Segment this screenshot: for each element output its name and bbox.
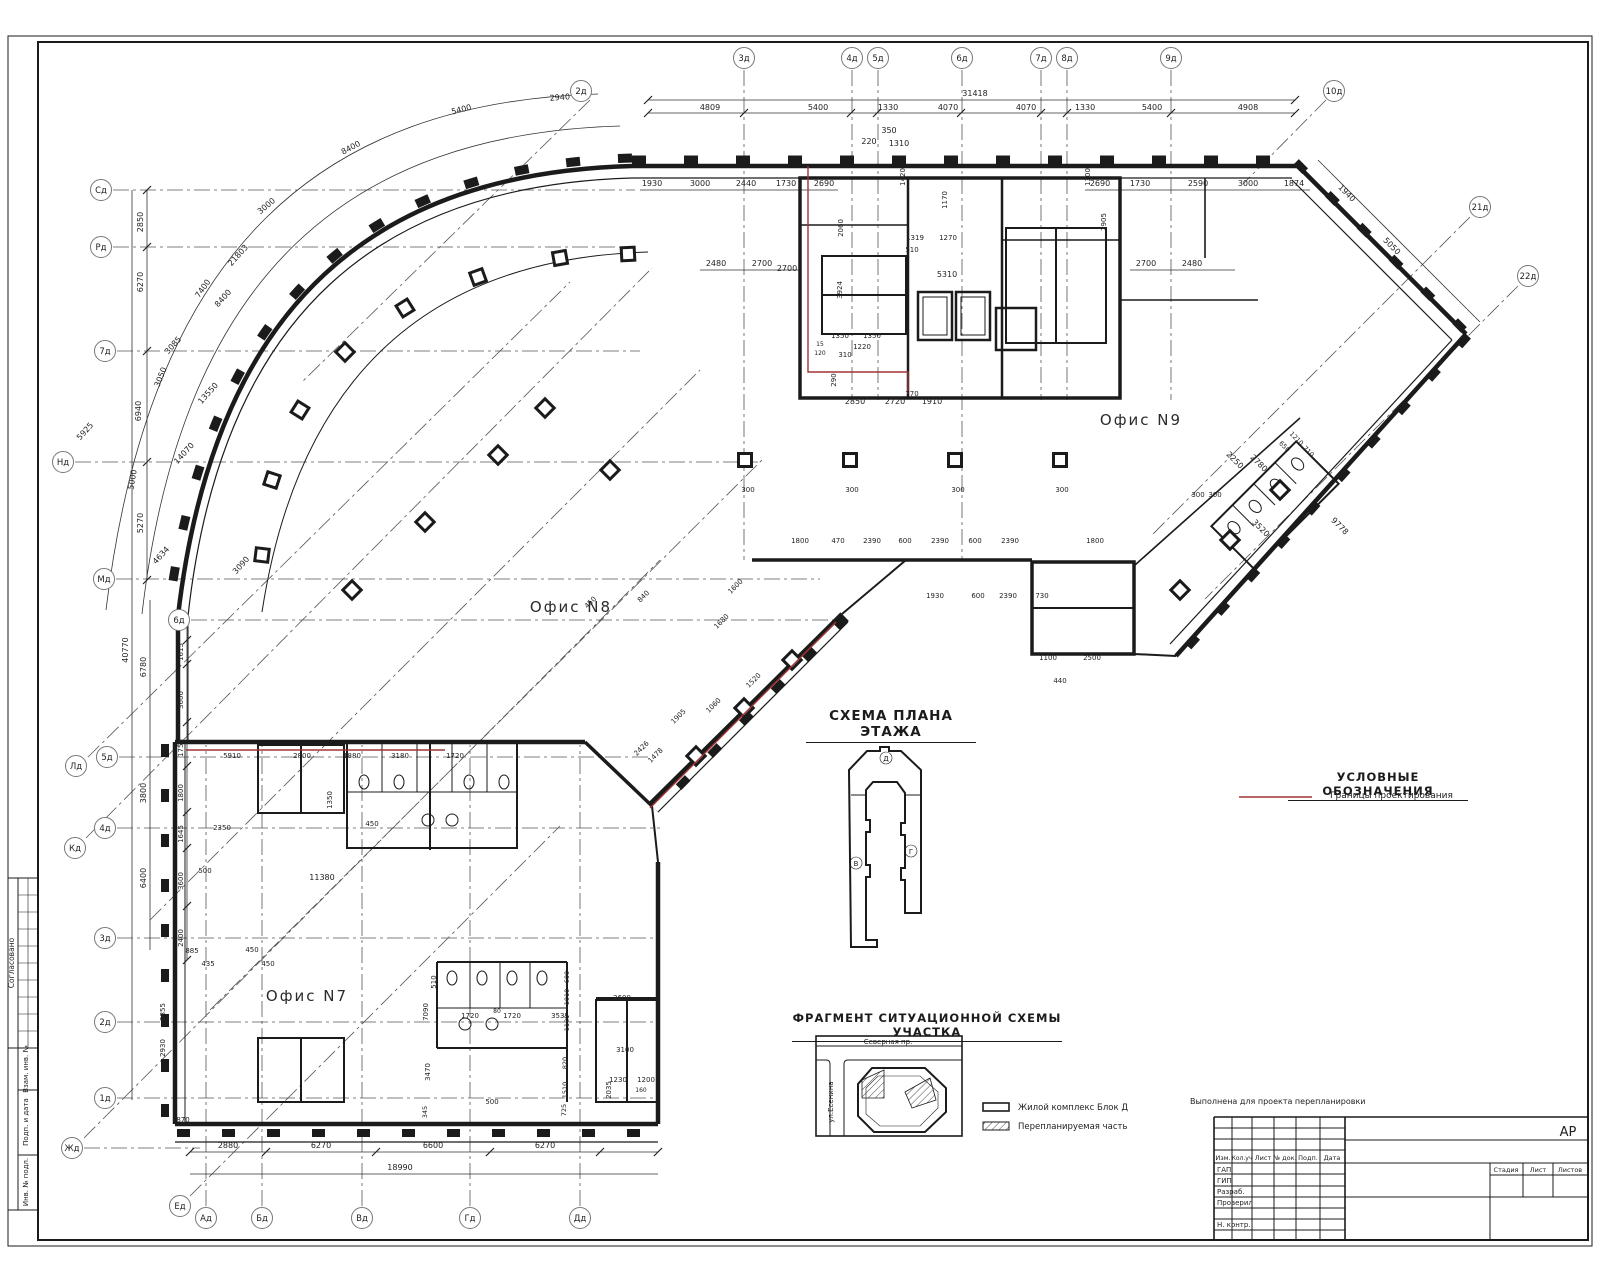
dim-label: Д	[883, 755, 889, 763]
dim-label: 18990	[387, 1163, 412, 1172]
dim-label: 4070	[1016, 103, 1036, 112]
axis-bubble-label: Ед	[174, 1202, 185, 1212]
dim-label: 1170	[941, 191, 949, 209]
dim-label: 4809	[700, 103, 720, 112]
axis-bubble-label: 3д	[99, 934, 110, 944]
dim-label: 2880	[218, 1141, 238, 1150]
dim-label: 600	[898, 537, 911, 545]
dim-label: 870	[176, 1116, 189, 1124]
dim-label: 2390	[999, 592, 1017, 600]
dim-label: 2690	[814, 179, 834, 188]
axis-bubble-label: 9д	[1165, 54, 1176, 64]
axis-bubble-label: 7д	[1035, 54, 1046, 64]
dim-label: 2855	[159, 1003, 167, 1021]
dim-label: 600	[968, 537, 981, 545]
dim-label: Дата	[1324, 1154, 1341, 1162]
dim-label: 500	[198, 867, 211, 875]
dim-label: 600	[971, 592, 984, 600]
dim-label: 1350	[863, 332, 881, 340]
dim-label: Выполнена для проекта перепланировки	[1190, 1097, 1365, 1106]
dim-label: 1880	[343, 752, 361, 760]
dim-label: 1930	[642, 179, 662, 188]
dim-label: 300	[1191, 491, 1204, 499]
dim-label: Лист	[1530, 1166, 1547, 1174]
dim-label: 350	[881, 126, 896, 135]
dim-label: 1800	[1086, 537, 1104, 545]
dim-label: Подп.	[1298, 1154, 1318, 1162]
dim-label: 1645	[177, 825, 185, 843]
dim-label: 470	[831, 537, 844, 545]
dim-label: 2850	[136, 212, 145, 232]
dim-label: 2720	[885, 397, 905, 406]
dim-label: 3600	[177, 872, 185, 890]
dim-label: 310	[838, 351, 851, 359]
dim-label: 6270	[136, 272, 145, 292]
dim-label: 1910	[922, 397, 942, 406]
dim-label: 5310	[937, 270, 957, 279]
dim-label: 160	[635, 1087, 647, 1094]
dim-label: 1874	[1284, 179, 1304, 188]
axis-bubble-label: 3д	[738, 54, 749, 64]
dim-label: 40770	[121, 637, 130, 662]
dim-label: 300	[741, 486, 754, 494]
dim-label: 2590	[1188, 179, 1208, 188]
dim-label: 6780	[139, 657, 148, 677]
dim-label: 1180	[563, 1015, 571, 1032]
fragment-title-text: ФРАГМЕНТ СИТУАЦИОННОЙ СХЕМЫ УЧАСТКА	[792, 1011, 1062, 1042]
dim-label: № док.	[1272, 1154, 1296, 1162]
dim-label: 1930	[926, 592, 944, 600]
scheme-title-text: СХЕМА ПЛАНА ЭТАЖА	[806, 708, 976, 743]
dim-label: 6600	[423, 1141, 443, 1150]
dim-label: АР	[1560, 1125, 1577, 1140]
axis-bubble-label: Ад	[200, 1214, 212, 1224]
dim-label: 2500	[1083, 654, 1101, 662]
dim-label: 2800	[293, 752, 311, 760]
dim-label: 2850	[845, 397, 865, 406]
dim-label: 345	[421, 1106, 429, 1118]
dim-label: Согласовано	[7, 937, 16, 988]
dim-label: 2700	[777, 264, 797, 273]
office-n7-label: Офис N7	[252, 987, 362, 1005]
dim-label: 500	[485, 1098, 498, 1106]
dim-label: 1100	[1039, 654, 1057, 662]
dim-label: 6940	[134, 401, 143, 421]
axis-bubble-label: 5д	[101, 753, 112, 763]
axis-bubble-label: 2д	[99, 1018, 110, 1028]
axis-bubble-label: Нд	[57, 458, 69, 468]
dim-label: Г	[909, 848, 913, 856]
dim-label: 2480	[706, 259, 726, 268]
dim-label: 7090	[422, 1003, 430, 1021]
dim-label: 2390	[863, 537, 881, 545]
axis-bubble-label: Жд	[64, 1144, 79, 1154]
dim-label: 300	[1208, 491, 1221, 499]
dim-label: 11380	[309, 873, 334, 882]
axis-bubble-label: Сд	[95, 186, 107, 196]
dim-label: 6270	[535, 1141, 555, 1150]
dim-label: 1800	[177, 784, 185, 802]
dim-label: 3100	[616, 1046, 634, 1054]
dim-label: 450	[245, 946, 258, 954]
dim-label: Перепланируемая часть	[1018, 1122, 1127, 1132]
dim-label: 4070	[938, 103, 958, 112]
dim-label: 1350	[831, 332, 849, 340]
dim-label: 1330	[1075, 103, 1095, 112]
axis-bubble-label: 1д	[99, 1094, 110, 1104]
dim-label: 2930	[159, 1039, 167, 1057]
dim-label: 450	[261, 960, 274, 968]
axis-bubble-label: 5д	[872, 54, 883, 64]
dim-label: Листов	[1558, 1166, 1582, 1174]
dim-label: Жилой комплекс Блок Д	[1018, 1103, 1128, 1113]
axis-bubble-label: Вд	[356, 1214, 368, 1224]
office-n8-label: Офис N8	[516, 598, 626, 616]
dim-label: 820	[561, 1057, 569, 1069]
dim-label: 2690	[1090, 179, 1110, 188]
dim-label: 510	[905, 246, 918, 254]
drawing-sheet: 3141848095400133040704070133054004908193…	[0, 0, 1600, 1280]
dim-label: 600	[563, 971, 571, 983]
dim-label: 1350	[326, 791, 334, 809]
dim-label: ГИП	[1217, 1177, 1232, 1185]
dim-label: В	[854, 860, 859, 868]
dim-label: 300	[951, 486, 964, 494]
office-n9-label: Офис N9	[1086, 411, 1196, 429]
dim-label: 510	[430, 975, 438, 988]
dim-label: 2400	[177, 929, 185, 947]
dim-label: Изм.	[1215, 1154, 1230, 1162]
dim-label: 5400	[1142, 103, 1162, 112]
dim-label: 1800	[791, 537, 809, 545]
axis-bubble-label: Рд	[95, 243, 106, 253]
dim-label: Лист	[1255, 1154, 1272, 1162]
dim-label: ГАП	[1217, 1166, 1231, 1174]
dim-label: 31418	[962, 89, 987, 98]
dim-label: 2390	[931, 537, 949, 545]
axis-bubble-label: 4д	[846, 54, 857, 64]
dim-label: 2390	[1001, 537, 1019, 545]
dim-label: 1270	[939, 234, 957, 242]
dim-label: 725	[560, 1104, 568, 1116]
legend-item-label: Границы проектирования	[1330, 791, 1453, 801]
dim-label: 1720	[503, 1012, 521, 1020]
dim-label: Кол.уч	[1232, 1155, 1253, 1162]
dim-label: 80	[493, 1008, 501, 1015]
dim-label: 1300	[1084, 168, 1092, 186]
dim-label: 5400	[808, 103, 828, 112]
dim-label: 300	[845, 486, 858, 494]
dim-label: 3180	[391, 752, 409, 760]
axis-bubble-label: Лд	[70, 762, 82, 772]
dim-label: 3000	[690, 179, 710, 188]
dim-label: 220	[861, 137, 876, 146]
dim-label: 6400	[139, 868, 148, 888]
dim-label: 730	[1035, 592, 1048, 600]
dim-label: 1730	[776, 179, 796, 188]
dim-label: 120	[814, 350, 826, 357]
dim-label: 1755	[177, 739, 185, 757]
dim-label: 1330	[878, 103, 898, 112]
dim-label: 885	[185, 947, 198, 955]
floor-plan-canvas: 3141848095400133040704070133054004908193…	[0, 0, 1600, 1280]
dim-label: 770	[905, 390, 918, 398]
dim-label: Проверил	[1217, 1199, 1253, 1207]
dim-label: 450	[365, 820, 378, 828]
dim-label: Инв. № подл.	[22, 1158, 30, 1206]
axis-bubble-label: Мд	[97, 575, 110, 585]
scheme-title: СХЕМА ПЛАНА ЭТАЖА	[806, 708, 976, 743]
dim-label: 1200	[637, 1076, 655, 1084]
dim-label: 5270	[136, 513, 145, 533]
dim-label: 1310	[889, 139, 909, 148]
axis-bubble-label: Кд	[69, 844, 81, 854]
dim-label: 1720	[461, 1012, 479, 1020]
axis-bubble-label: 22д	[1520, 272, 1537, 282]
dim-label: 2440	[736, 179, 756, 188]
dim-label: 3600	[177, 691, 185, 709]
dim-label: Подп. и дата	[22, 1098, 30, 1146]
axis-bubble-label: 6д	[173, 616, 184, 626]
dim-label: 5910	[223, 752, 241, 760]
dim-label: 2940	[549, 92, 570, 102]
dim-label: 2700	[752, 259, 772, 268]
dim-label: 2350	[213, 824, 231, 832]
dim-label: 1420	[899, 168, 907, 186]
axis-bubble-label: Бд	[256, 1214, 268, 1224]
dim-label: 3000	[1238, 179, 1258, 188]
dim-label: 2905	[1100, 213, 1108, 231]
dim-label: 435	[201, 960, 214, 968]
dim-label: 1510	[561, 1082, 569, 1099]
dim-label: Взам. инв. №	[22, 1045, 30, 1093]
dim-label: 3470	[424, 1063, 432, 1081]
fragment-title: ФРАГМЕНТ СИТУАЦИОННОЙ СХЕМЫ УЧАСТКА	[792, 1011, 1062, 1042]
axis-bubble-label: Дд	[574, 1214, 587, 1224]
dim-label: ул.Есенина	[827, 1081, 835, 1122]
dim-label: 2060	[837, 219, 845, 237]
axis-bubble-label: 21д	[1472, 203, 1489, 213]
dim-label: 290	[830, 373, 838, 386]
dim-label: Н. контр.	[1217, 1221, 1251, 1229]
dim-label: 1730	[1130, 179, 1150, 188]
dim-label: 6270	[311, 1141, 331, 1150]
dim-label: 440	[1053, 677, 1066, 685]
axis-bubble-label: 2д	[575, 87, 586, 97]
dim-label: 3924	[836, 281, 844, 299]
dim-label: 15	[816, 341, 824, 348]
dim-label: 1615	[177, 643, 185, 661]
dim-label: Стадия	[1494, 1166, 1519, 1174]
axis-bubble-label: 10д	[1326, 87, 1343, 97]
dim-label: Разраб.	[1217, 1188, 1245, 1196]
axis-bubble-label: Гд	[464, 1214, 475, 1224]
dim-label: 2600	[613, 994, 631, 1002]
dim-label: 300	[1055, 486, 1068, 494]
dim-label: 1319	[906, 234, 924, 242]
dim-label: 2700	[1136, 259, 1156, 268]
dim-label: 2480	[1182, 259, 1202, 268]
dim-label: 2035	[605, 1081, 613, 1099]
dim-label: 1010	[563, 989, 571, 1006]
dim-label: 1720	[446, 752, 464, 760]
dim-label: 3800	[139, 783, 148, 803]
axis-bubble-label: 8д	[1061, 54, 1072, 64]
dim-label: 4908	[1238, 103, 1258, 112]
dim-label: 1220	[853, 343, 871, 351]
axis-bubble-label: 6д	[956, 54, 967, 64]
axis-bubble-label: 4д	[99, 824, 110, 834]
axis-bubble-label: 7д	[99, 347, 110, 357]
